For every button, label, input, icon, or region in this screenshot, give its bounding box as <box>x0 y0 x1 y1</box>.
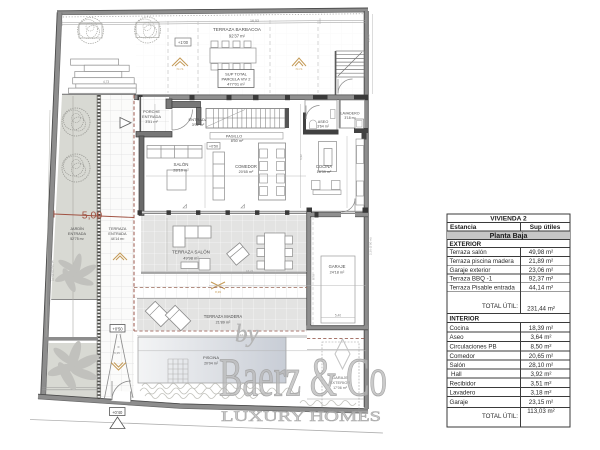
svg-text:21,89 m²: 21,89 m² <box>529 258 553 265</box>
svg-text:SALÓN: SALÓN <box>174 162 189 167</box>
svg-text:3'92 m²: 3'92 m² <box>192 123 205 127</box>
svg-text:Planta Baja: Planta Baja <box>490 233 528 240</box>
svg-text:JARDÍN: JARDÍN <box>70 227 84 231</box>
svg-text:52'75 m²: 52'75 m² <box>70 237 84 241</box>
svg-text:+1'00: +1'00 <box>178 40 189 45</box>
svg-text:Baerz & Co: Baerz & Co <box>219 347 387 408</box>
svg-text:3,51 m²: 3,51 m² <box>531 381 552 388</box>
svg-text:18'39 m²: 18'39 m² <box>317 170 332 174</box>
svg-text:20'65 m²: 20'65 m² <box>239 170 254 174</box>
svg-text:ENTRADA: ENTRADA <box>142 114 161 119</box>
svg-text:Estancia: Estancia <box>450 224 477 231</box>
svg-text:TERRAZA: TERRAZA <box>109 227 127 231</box>
svg-text:Salón: Salón <box>450 362 466 369</box>
svg-text:LAVADERO: LAVADERO <box>340 112 359 116</box>
svg-text:20'04 m²: 20'04 m² <box>204 362 219 366</box>
svg-text:ENTRADA: ENTRADA <box>188 117 207 122</box>
svg-text:Sup útiles: Sup útiles <box>530 224 561 231</box>
svg-text:23,15 m²: 23,15 m² <box>529 399 553 406</box>
svg-text:TERRAZA BARBACOA: TERRAZA BARBACOA <box>213 27 262 32</box>
svg-text:+0'40: +0'40 <box>112 410 123 415</box>
svg-text:by: by <box>235 321 260 348</box>
svg-text:ENTRADA: ENTRADA <box>108 232 127 236</box>
svg-text:Terraza piscina madera: Terraza piscina madera <box>450 258 515 265</box>
svg-text:+0'50: +0'50 <box>112 327 123 332</box>
svg-text:477'01 m²: 477'01 m² <box>227 82 245 87</box>
svg-text:LUXURY HOMES: LUXURY HOMES <box>221 409 381 425</box>
svg-text:Terraza Pisable entrada: Terraza Pisable entrada <box>450 284 516 291</box>
svg-text:Cocina: Cocina <box>450 325 470 332</box>
svg-text:Garaje: Garaje <box>450 399 469 406</box>
svg-text:3'18 m²: 3'18 m² <box>344 116 356 120</box>
svg-text:Garaje exterior: Garaje exterior <box>450 267 491 274</box>
svg-text:Comedor: Comedor <box>450 353 475 360</box>
svg-text:Circulaciones PB: Circulaciones PB <box>450 344 497 351</box>
svg-text:PASILLO: PASILLO <box>226 134 242 139</box>
svg-text:6,92: 6,92 <box>299 154 303 160</box>
svg-text:8,39: 8,39 <box>215 290 221 294</box>
svg-text:EXTERIOR: EXTERIOR <box>450 241 482 248</box>
svg-text:VIVIENDA 2: VIVIENDA 2 <box>490 215 527 222</box>
svg-text:3'51 m²: 3'51 m² <box>145 120 158 124</box>
svg-text:Terraza BBQ -1: Terraza BBQ -1 <box>450 276 493 283</box>
svg-text:49,98 m²: 49,98 m² <box>529 249 553 256</box>
svg-text:92,37 m²: 92,37 m² <box>529 276 553 283</box>
svg-text:18,39 m²: 18,39 m² <box>529 325 553 332</box>
svg-text:TERRAZA SALÓN: TERRAZA SALÓN <box>172 249 210 255</box>
svg-text:TERRAZA MADERA: TERRAZA MADERA <box>204 314 243 319</box>
svg-text:44'14 m²: 44'14 m² <box>111 237 125 241</box>
svg-text:COCINA: COCINA <box>316 164 332 169</box>
svg-text:TOTAL ÚTIL:: TOTAL ÚTIL: <box>482 413 518 420</box>
svg-text:3,64 m²: 3,64 m² <box>531 334 552 341</box>
svg-text:21,63: 21,63 <box>367 34 371 42</box>
svg-text:GARAJE: GARAJE <box>329 264 346 269</box>
svg-text:ENTRADA: ENTRADA <box>68 232 87 236</box>
svg-text:COMEDOR: COMEDOR <box>235 164 257 169</box>
svg-text:113,03 m²: 113,03 m² <box>527 408 554 415</box>
svg-text:92'37 m²: 92'37 m² <box>229 34 246 39</box>
svg-text:Hall: Hall <box>451 371 462 378</box>
svg-text:8,50 m²: 8,50 m² <box>531 344 552 351</box>
svg-text:4,73: 4,73 <box>103 80 109 84</box>
svg-text:TOTAL ÚTIL:: TOTAL ÚTIL: <box>482 303 518 310</box>
svg-text:49'98 m²: 49'98 m² <box>183 256 199 261</box>
svg-text:6,35: 6,35 <box>114 351 120 355</box>
svg-text:RAMPA PENDIENTE 2,5% (4,32 m): RAMPA PENDIENTE 2,5% (4,32 m) <box>98 345 102 391</box>
svg-text:Lavadero: Lavadero <box>450 390 476 397</box>
svg-text:3'64 m²: 3'64 m² <box>317 125 330 129</box>
svg-text:44,14 m²: 44,14 m² <box>529 284 553 291</box>
svg-text:231,44 m²: 231,44 m² <box>527 306 555 313</box>
svg-text:N.I.S: N.I.S <box>177 67 184 71</box>
svg-text:9,78: 9,78 <box>312 274 316 280</box>
svg-text:5,00: 5,00 <box>82 210 103 222</box>
svg-text:+0'50: +0'50 <box>209 145 218 149</box>
svg-text:8'50 m²: 8'50 m² <box>231 139 244 143</box>
svg-text:21'89 m²: 21'89 m² <box>216 321 231 325</box>
svg-text:5,40: 5,40 <box>335 314 341 318</box>
svg-text:23,06 m²: 23,06 m² <box>529 267 553 274</box>
svg-text:20,65 m²: 20,65 m² <box>529 353 553 360</box>
svg-text:ASEO: ASEO <box>318 120 329 124</box>
svg-text:3,18 m²: 3,18 m² <box>531 390 552 397</box>
svg-text:Recibidor: Recibidor <box>450 381 476 388</box>
svg-text:2,36 (5'90 m): 2,36 (5'90 m) <box>369 237 373 255</box>
svg-text:16,21: 16,21 <box>246 269 254 273</box>
svg-text:Aseo: Aseo <box>450 334 465 341</box>
svg-text:INTERIOR: INTERIOR <box>450 315 480 322</box>
svg-text:24'18 m²: 24'18 m² <box>330 271 345 275</box>
svg-text:PISCINA: PISCINA <box>203 355 219 360</box>
svg-text:16,53: 16,53 <box>250 19 259 23</box>
svg-text:3,92 m²: 3,92 m² <box>531 371 552 378</box>
svg-text:28'10 m²: 28'10 m² <box>173 168 189 173</box>
svg-text:N.I.S: N.I.S <box>296 67 303 71</box>
svg-text:28,10 m²: 28,10 m² <box>529 362 553 369</box>
svg-text:Terraza salón: Terraza salón <box>450 249 488 256</box>
